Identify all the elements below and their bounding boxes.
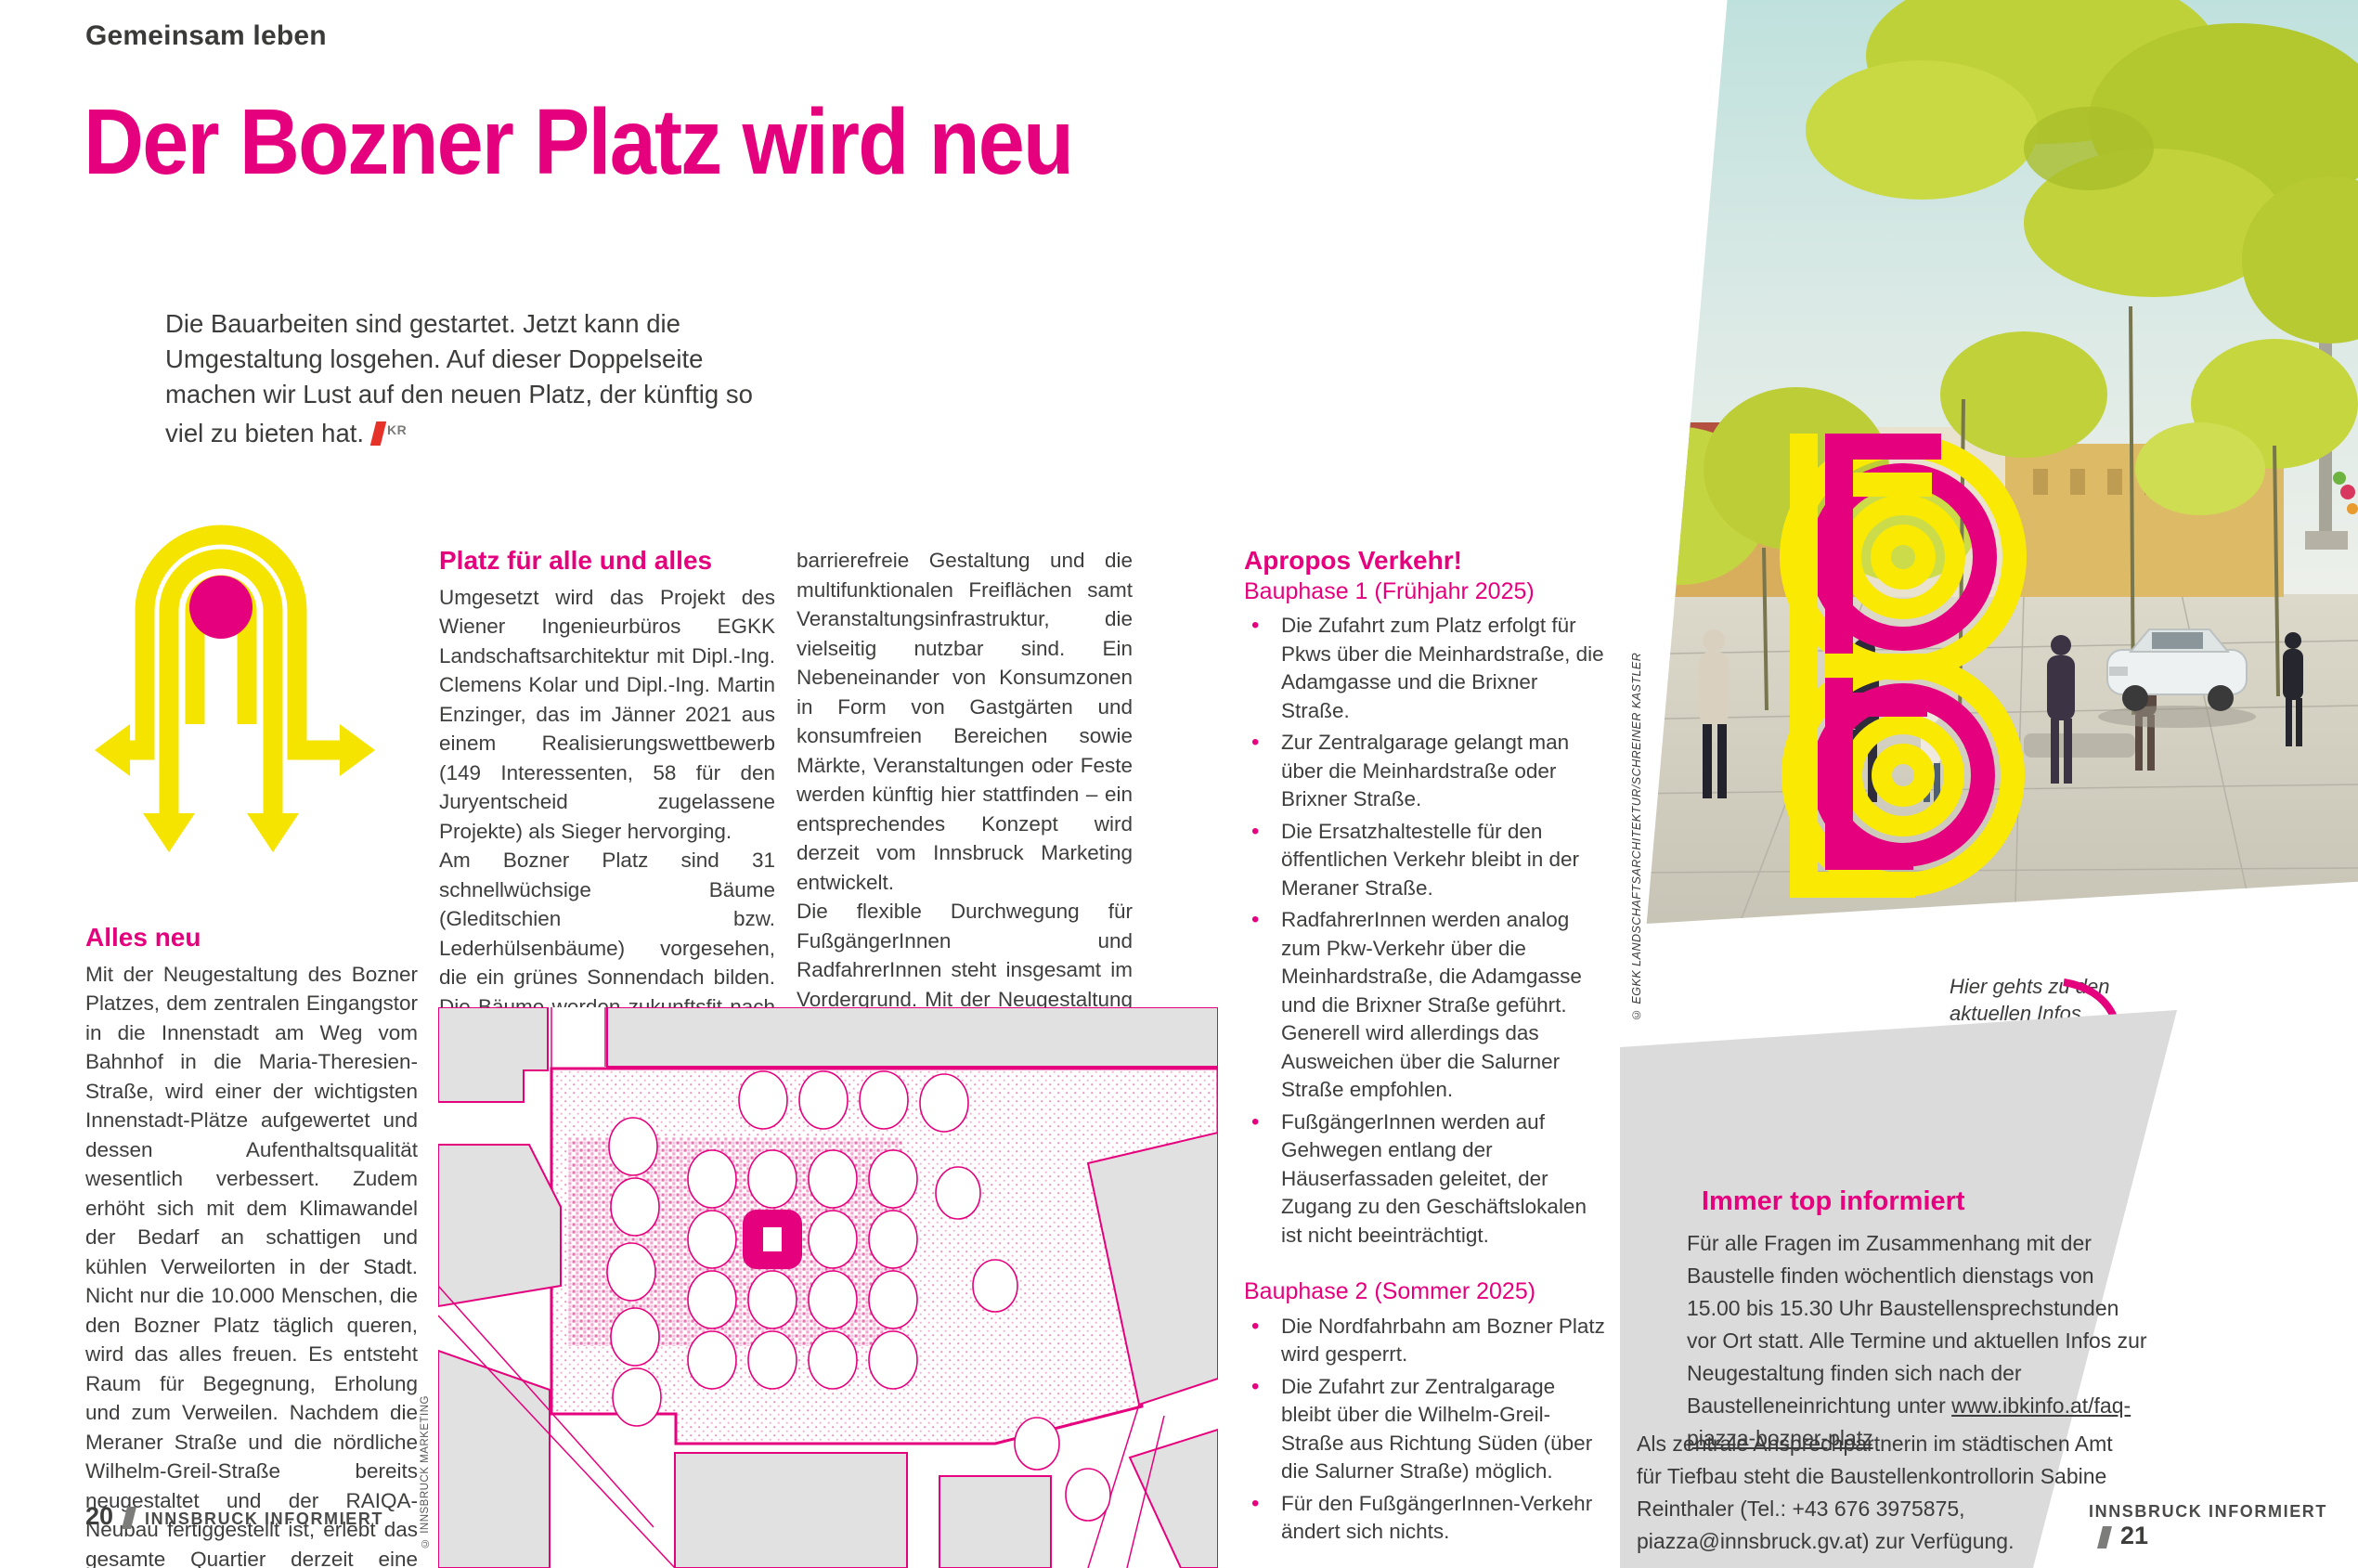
bench <box>2024 733 2135 758</box>
footer-left: 20INNSBRUCK INFORMIERT <box>85 1502 383 1531</box>
icon-dot <box>189 576 253 639</box>
infobox-contact: Als zentrale Ansprechpartnerin im städti… <box>1637 1428 2119 1558</box>
phase-title: Bauphase 2 (Sommer 2025) <box>1244 1277 1608 1307</box>
article-heading: Alles neu <box>85 923 418 952</box>
traffic-flow-icon <box>82 516 388 864</box>
bullet-item: Die Ersatzhaltestelle für den öffentlich… <box>1244 818 1608 903</box>
map-credit: © INNSBRUCK MARKETING <box>420 1391 431 1549</box>
bullet-item: Zur Zentralgarage gelangt man über die M… <box>1244 729 1608 814</box>
bullet-item: Die Nordfahrbahn am Bozner Platz wird ge… <box>1244 1313 1608 1369</box>
article-verkehr: Apropos Verkehr! Bauphase 1 (Frühjahr 20… <box>1244 546 1608 1568</box>
footer-brand: INNSBRUCK INFORMIERT <box>2089 1502 2327 1521</box>
bullet-item: Die Zufahrt zum Platz erfolgt für Pkws ü… <box>1244 612 1608 725</box>
bullet-item: Für den FußgängerInnen-Verkehr ändert si… <box>1244 1490 1608 1547</box>
rudolfsbrunnen-fountain <box>743 1210 802 1269</box>
page-number: 20 <box>85 1502 113 1530</box>
rendering-illustration <box>1625 0 2358 933</box>
page-number: 21 <box>2120 1522 2148 1549</box>
article-paragraph: Umgesetzt wird das Projekt des Wiener In… <box>439 583 775 847</box>
article-body: Mit der Neugestaltung des Bozner Platzes… <box>85 960 418 1568</box>
magazine-spread: Gemeinsam leben Der Bozner Platz wird ne… <box>0 0 2358 1568</box>
article-paragraph: barrierefreie Gestaltung und die multifu… <box>797 546 1133 897</box>
article-alles-neu: Alles neu Mit der Neugestaltung des Bozn… <box>85 923 418 1568</box>
section-label: Gemeinsam leben <box>85 20 327 52</box>
article-heading: Apropos Verkehr! <box>1244 546 1608 576</box>
author-initials: KR <box>387 422 407 437</box>
article-heading: Platz für alle und alles <box>439 546 775 576</box>
author-slash-icon <box>370 421 386 446</box>
bullet-item: FußgängerInnen werden auf Gehwegen entla… <box>1244 1108 1608 1251</box>
footer-slash-icon <box>2097 1526 2112 1549</box>
intro-text: Die Bauarbeiten sind gestartet. Jetzt ka… <box>165 309 753 447</box>
infobox-paragraph: Für alle Fragen im Zusammenhang mit der … <box>1687 1227 2151 1455</box>
phase-title: Bauphase 1 (Frühjahr 2025) <box>1244 577 1608 607</box>
rendering-image <box>1625 0 2358 933</box>
footer-brand: INNSBRUCK INFORMIERT <box>145 1510 383 1528</box>
phase-bullet-list: Die Nordfahrbahn am Bozner Platz wird ge… <box>1244 1313 1608 1547</box>
intro-paragraph: Die Bauarbeiten sind gestartet. Jetzt ka… <box>165 306 759 451</box>
footer-right: INNSBRUCK INFORMIERT21 <box>2089 1502 2358 1550</box>
footer-slash-icon <box>122 1507 136 1529</box>
bullet-item: RadfahrerInnen werden analog zum Pkw-Ver… <box>1244 906 1608 1105</box>
phase-bullet-list: Die Zufahrt zum Platz erfolgt für Pkws ü… <box>1244 612 1608 1250</box>
image-credit: © EGKK LANDSCHAFTSARCHITEKTUR/SCHREINER … <box>1630 687 1643 1021</box>
site-plan-map <box>438 1007 1218 1568</box>
infobox-heading: Immer top informiert <box>1702 1186 1965 1217</box>
bullet-item: Die Zufahrt zur Zentralgarage bleibt übe… <box>1244 1373 1608 1486</box>
page-title: Der Bozner Platz wird neu <box>84 89 1072 196</box>
